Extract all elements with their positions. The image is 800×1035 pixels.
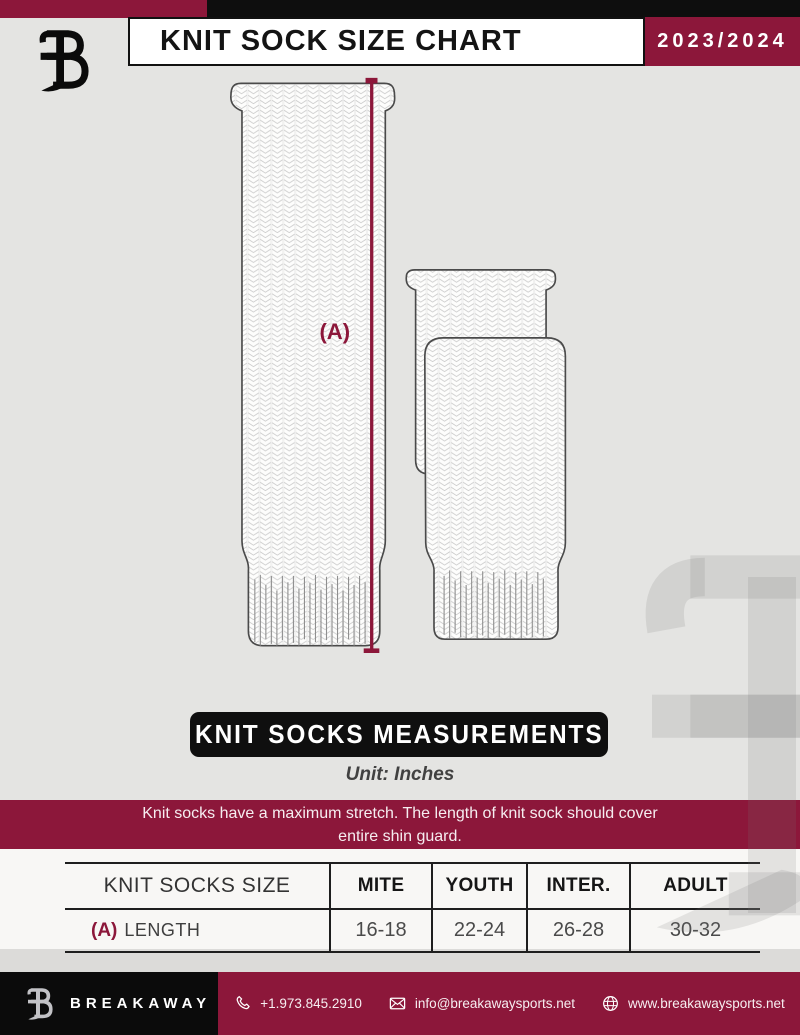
sock-front-illustration (425, 338, 566, 639)
unit-label: Unit: Inches (0, 764, 800, 786)
footer-b-monogram-icon (20, 984, 60, 1024)
table-header-size: KNIT SOCKS SIZE (65, 864, 329, 910)
envelope-icon (388, 994, 407, 1013)
header-black-strip (207, 0, 800, 18)
table-header-inter: INTER. (526, 864, 629, 910)
row-key-A: (A) (91, 920, 117, 942)
length-mite: 16-18 (329, 910, 431, 951)
season-badge: 2023/2024 (645, 17, 800, 66)
table-header-youth: YOUTH (431, 864, 526, 910)
row-name-length: LENGTH (124, 920, 200, 941)
footer-contacts: +1.973.845.2910 info@breakawaysports.net… (218, 972, 800, 1035)
measurements-banner-text: KNIT SOCKS MEASUREMENTS (195, 719, 604, 750)
measurement-label-A: (A) (319, 319, 350, 344)
note-line-1: Knit socks have a maximum stretch. The l… (142, 802, 658, 825)
phone-number: +1.973.845.2910 (260, 996, 362, 1011)
website-link[interactable]: www.breakawaysports.net (601, 994, 785, 1013)
knit-sock-size-chart-page: { "header": { "title": "KNIT SOCK SIZE C… (0, 0, 800, 1035)
size-table: KNIT SOCKS SIZE MITE YOUTH INTER. ADULT … (65, 862, 760, 953)
length-youth: 22-24 (431, 910, 526, 951)
website-url: www.breakawaysports.net (628, 996, 785, 1011)
email-link[interactable]: info@breakawaysports.net (388, 994, 575, 1013)
length-inter: 26-28 (526, 910, 629, 951)
note-line-2: entire shin guard. (338, 825, 462, 848)
phone-link[interactable]: +1.973.845.2910 (233, 994, 362, 1013)
email-address: info@breakawaysports.net (415, 996, 575, 1011)
table-row-length-label: (A) LENGTH (65, 910, 329, 951)
header-maroon-strip (0, 0, 207, 18)
measurements-banner: KNIT SOCKS MEASUREMENTS (190, 712, 608, 757)
globe-icon (601, 994, 620, 1013)
page-title: KNIT SOCK SIZE CHART (160, 25, 522, 58)
title-bar: KNIT SOCK SIZE CHART (128, 17, 645, 66)
footer: BREAKAWAY +1.973.845.2910 info@breakaway… (0, 972, 800, 1035)
note-banner: Knit socks have a maximum stretch. The l… (0, 800, 800, 849)
table-header-adult: ADULT (629, 864, 760, 910)
footer-logo-box: BREAKAWAY (0, 972, 218, 1035)
breakaway-b-monogram-icon (25, 22, 103, 100)
length-adult: 30-32 (629, 910, 760, 951)
footer-brand-name: BREAKAWAY (70, 995, 211, 1012)
sock-diagram: (A) (0, 65, 800, 800)
table-header-mite: MITE (329, 864, 431, 910)
phone-icon (233, 994, 252, 1013)
